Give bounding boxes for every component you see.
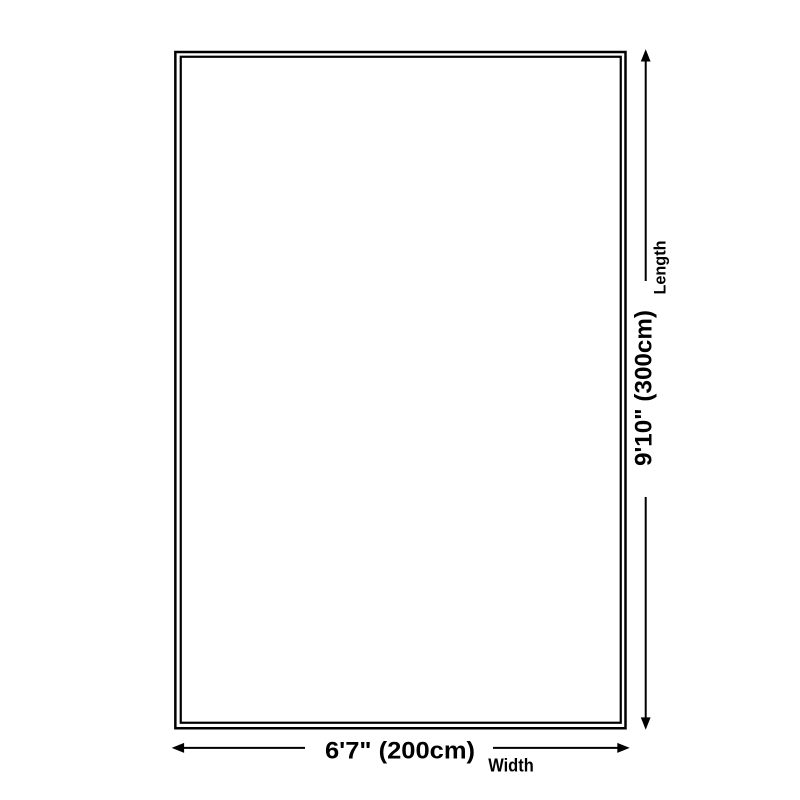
svg-text:9'10" (300cm): 9'10" (300cm) — [630, 310, 657, 466]
svg-text:Length: Length — [651, 241, 669, 295]
svg-text:Width: Width — [488, 755, 534, 775]
svg-text:6'7" (200cm): 6'7" (200cm) — [325, 738, 475, 765]
